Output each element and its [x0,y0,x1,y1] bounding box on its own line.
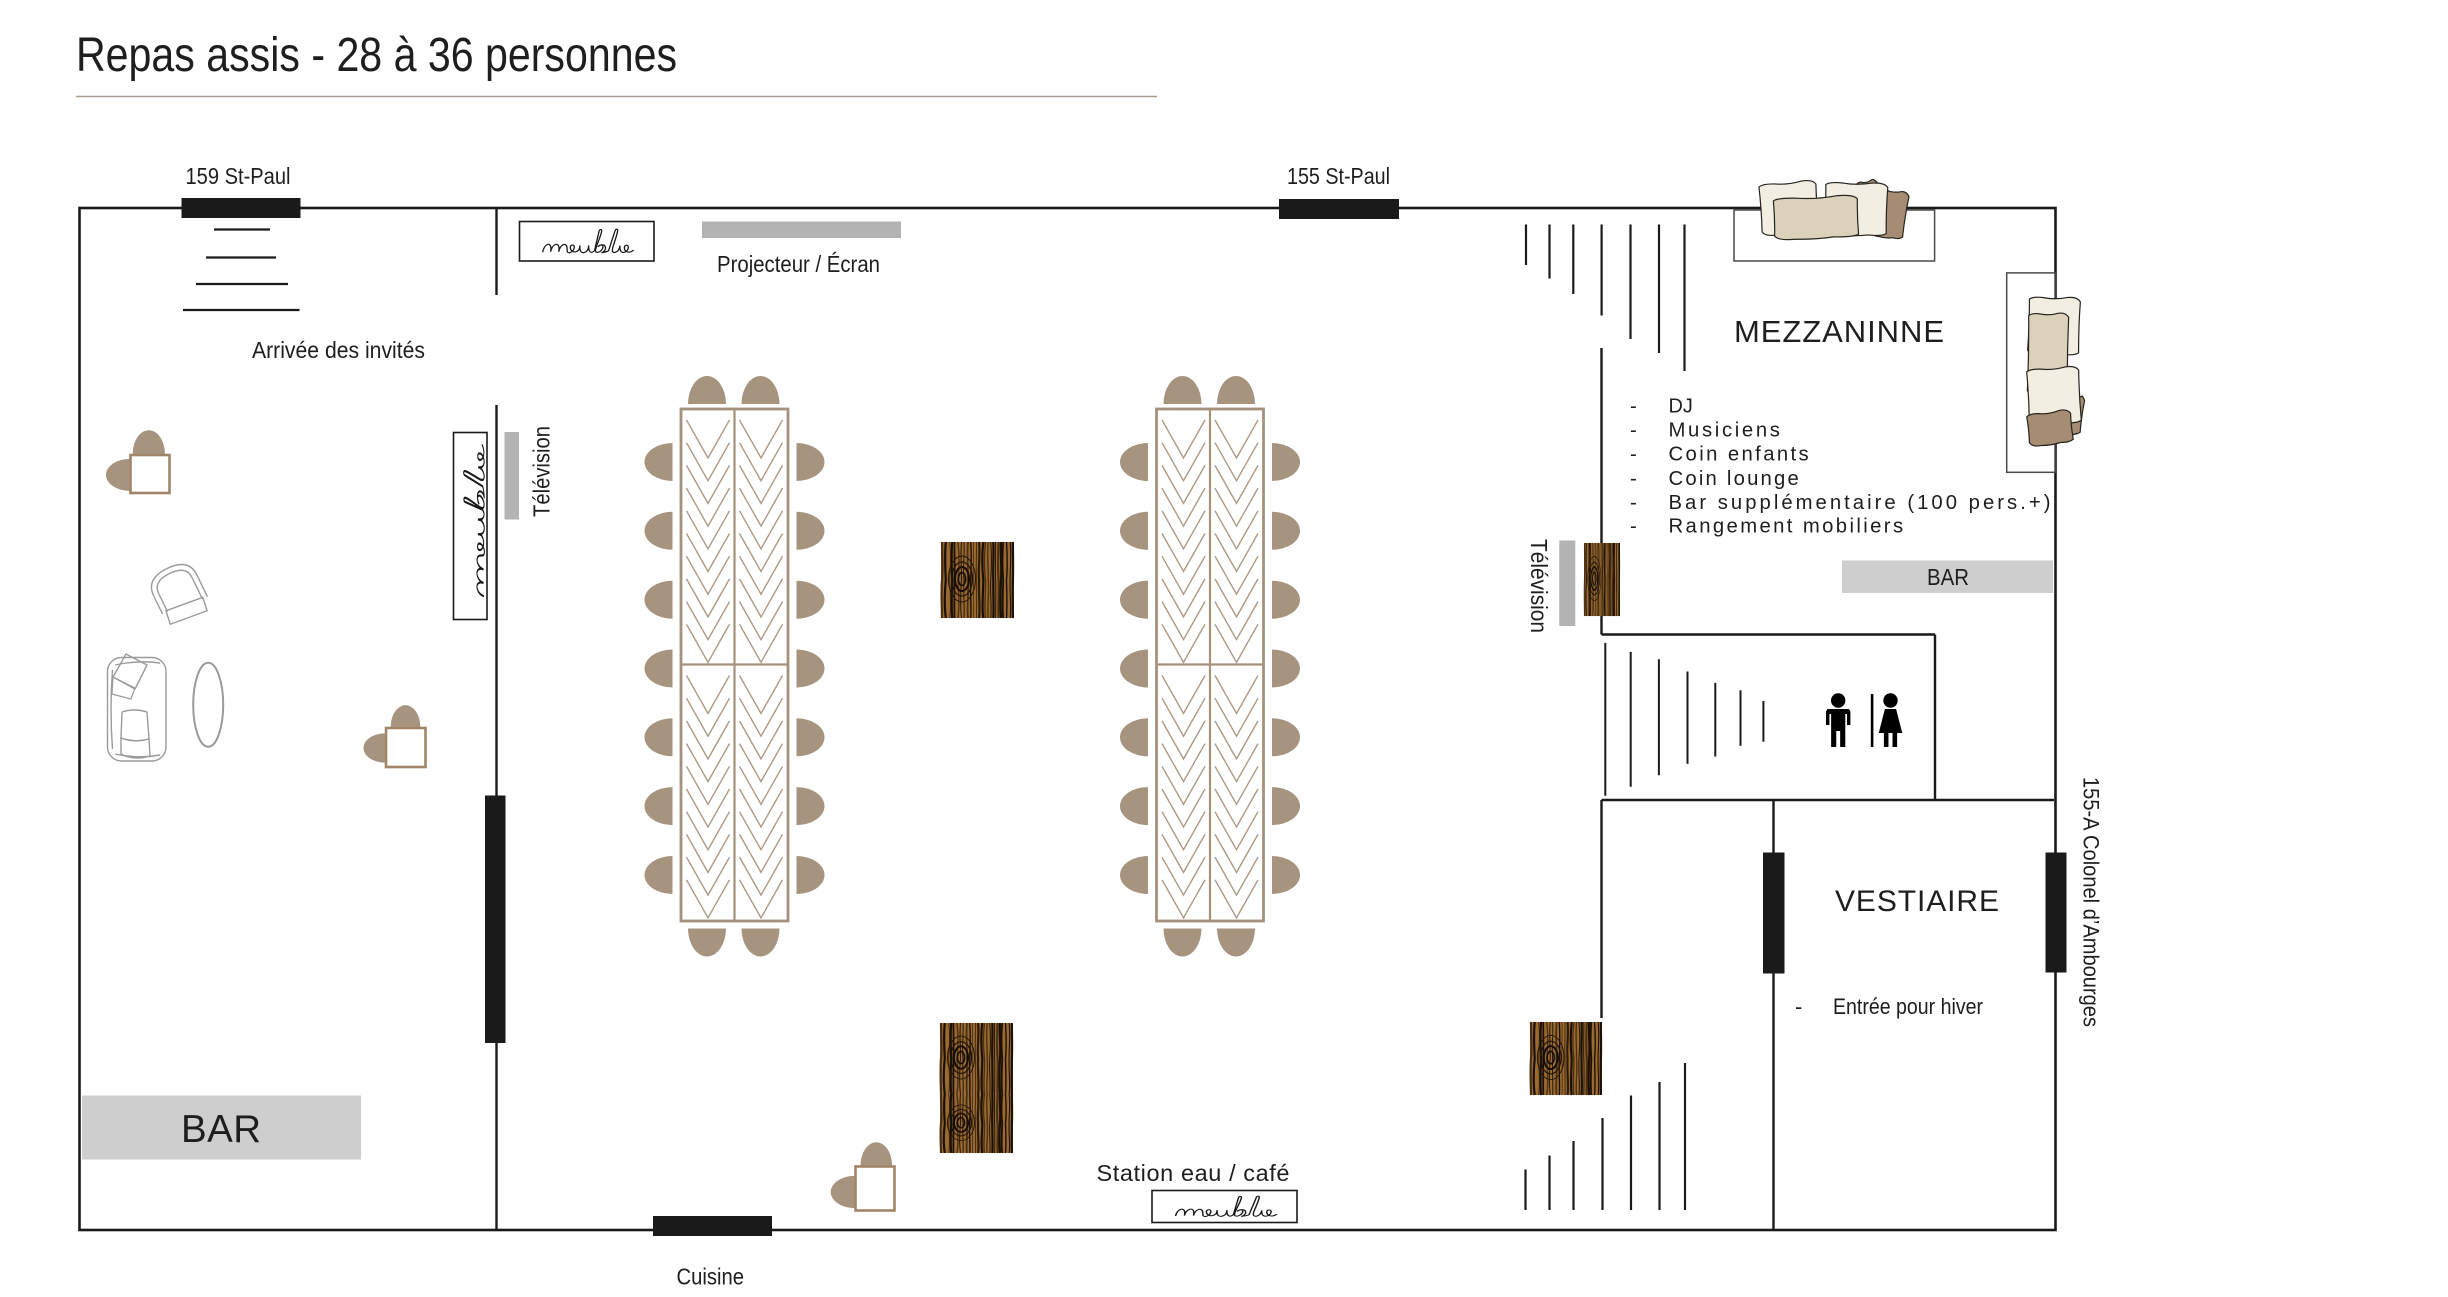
svg-text:Entrée pour hiver: Entrée pour hiver [1833,994,1983,1019]
svg-text:-: - [1630,516,1637,538]
svg-text:BAR: BAR [181,1108,261,1151]
svg-text:-: - [1630,492,1637,514]
svg-text:MEZZANINNE: MEZZANINNE [1734,314,1944,349]
svg-text:Télévision: Télévision [529,426,555,517]
svg-text:159 St-Paul: 159 St-Paul [186,163,291,189]
svg-text:Repas assis - 28 à 36 personne: Repas assis - 28 à 36 personnes [76,29,677,82]
svg-text:-: - [1795,994,1802,1019]
svg-text:-: - [1630,444,1637,466]
svg-text:BAR: BAR [1927,564,1969,590]
svg-text:Coin lounge: Coin lounge [1669,468,1799,490]
svg-text:155 St-Paul: 155 St-Paul [1287,163,1390,189]
svg-text:Cuisine: Cuisine [677,1264,745,1290]
svg-text:Station eau / café: Station eau / café [1097,1160,1290,1186]
svg-text:Télévision: Télévision [1526,539,1552,633]
svg-text:Musiciens: Musiciens [1669,419,1780,441]
svg-text:-: - [1630,396,1637,418]
svg-text:DJ: DJ [1669,396,1693,418]
svg-text:VESTIAIRE: VESTIAIRE [1835,885,1999,918]
svg-text:Coin enfants: Coin enfants [1669,444,1809,466]
svg-text:155-A Colonel d’Ambourges: 155-A Colonel d’Ambourges [2079,777,2104,1027]
svg-text:-: - [1630,468,1637,490]
svg-text:-: - [1630,419,1637,441]
svg-text:Arrivée des invités: Arrivée des invités [252,337,425,363]
svg-text:Projecteur / Écran: Projecteur / Écran [717,251,880,277]
svg-text:Bar supplémentaire (100 pers.+: Bar supplémentaire (100 pers.+) [1669,492,2051,514]
